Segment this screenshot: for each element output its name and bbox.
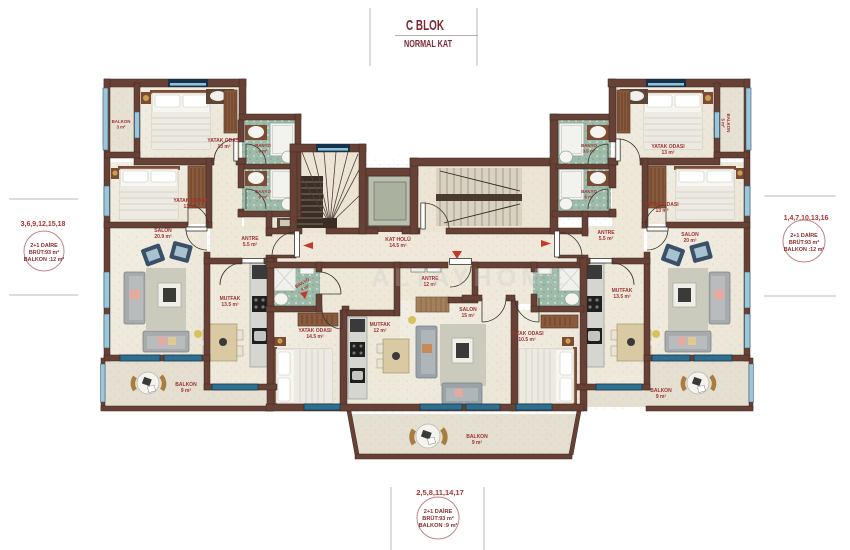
svg-text:NORMAL KAT: NORMAL KAT <box>404 38 452 50</box>
svg-text:2+1 DAİRE: 2+1 DAİRE <box>790 232 818 239</box>
svg-text:2,5,8,11,14,17: 2,5,8,11,14,17 <box>416 488 464 497</box>
svg-text:2+1 DAİRE: 2+1 DAİRE <box>30 242 58 249</box>
svg-text:2+1 DAİRE: 2+1 DAİRE <box>424 508 453 515</box>
svg-text:SALON15 m²: SALON15 m² <box>459 307 477 319</box>
svg-text:3,6,9,12,15,18: 3,6,9,12,15,18 <box>21 221 66 228</box>
svg-text:BALKON :12 m²: BALKON :12 m² <box>24 257 65 263</box>
svg-text:BALKON :12 m²: BALKON :12 m² <box>784 247 825 253</box>
svg-text:BALKON :9 m²: BALKON :9 m² <box>419 522 458 529</box>
svg-text:BRÜT:93 m²: BRÜT:93 m² <box>422 515 454 522</box>
svg-text:BRÜT:93 m²: BRÜT:93 m² <box>29 249 59 256</box>
svg-text:ALTAYHOME: ALTAYHOME <box>371 264 568 292</box>
svg-text:SALON20.9 m²: SALON20.9 m² <box>154 228 172 240</box>
svg-text:ANTRE5.5 m²: ANTRE5.5 m² <box>597 230 615 242</box>
svg-text:BANYO3.5 m²: BANYO3.5 m² <box>581 143 597 154</box>
svg-text:MUTFAK13.5 m²: MUTFAK13.5 m² <box>612 288 633 300</box>
svg-text:SALON20 m²: SALON20 m² <box>681 232 699 244</box>
svg-text:BRÜT:93 m²: BRÜT:93 m² <box>789 239 819 246</box>
svg-text:ANTRE5.5 m²: ANTRE5.5 m² <box>241 236 259 248</box>
svg-text:C BLOK: C BLOK <box>406 17 444 34</box>
svg-text:MUTFAK13.5 m²: MUTFAK13.5 m² <box>220 296 241 308</box>
